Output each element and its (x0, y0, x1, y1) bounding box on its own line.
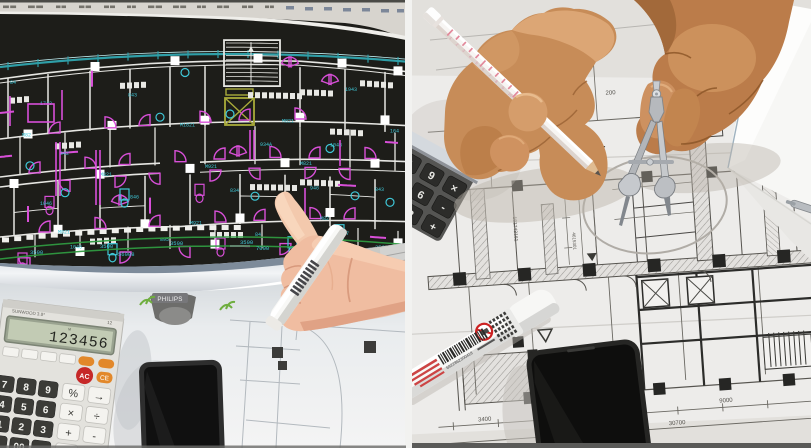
svg-text:M821: M821 (300, 161, 312, 167)
svg-text:M82: M82 (22, 133, 31, 139)
svg-text:3500: 3500 (100, 243, 113, 250)
svg-text:9000: 9000 (719, 398, 733, 405)
svg-text:M921: M921 (190, 220, 202, 226)
svg-text:1046: 1046 (40, 201, 52, 207)
svg-text:843: 843 (128, 93, 137, 99)
svg-text:M921: M921 (205, 164, 217, 170)
svg-text:M821: M821 (58, 229, 70, 235)
svg-text:3500: 3500 (170, 240, 183, 247)
svg-text:834: 834 (230, 188, 239, 194)
svg-text:AC: AC (79, 373, 90, 381)
svg-text:3500: 3500 (240, 239, 253, 246)
svg-text:3500: 3500 (30, 249, 43, 256)
svg-text:7000: 7000 (256, 245, 269, 252)
svg-text:1943: 1943 (345, 87, 357, 93)
svg-text:846: 846 (130, 195, 139, 201)
svg-text:946: 946 (310, 186, 319, 192)
svg-text:200: 200 (605, 90, 616, 97)
svg-text:→: → (93, 390, 105, 403)
svg-text:PHILIPS: PHILIPS (157, 296, 182, 303)
svg-text:942: 942 (60, 151, 69, 157)
svg-text:934A: 934A (260, 142, 272, 148)
svg-text:56008: 56008 (118, 251, 135, 258)
svg-text:30700: 30700 (669, 420, 687, 427)
svg-text:M821: M821 (100, 172, 112, 178)
svg-text:1046: 1046 (70, 244, 82, 250)
svg-text:M821: M821 (282, 119, 294, 125)
svg-text:%: % (68, 387, 79, 400)
svg-text:CE: CE (99, 374, 109, 382)
svg-text:84: 84 (10, 80, 16, 86)
svg-text:843: 843 (375, 187, 384, 193)
svg-text:M82: M82 (320, 216, 329, 222)
svg-text:164: 164 (390, 128, 399, 134)
svg-text:M1821: M1821 (180, 123, 195, 129)
svg-text:3400: 3400 (478, 417, 492, 424)
svg-text:M: M (68, 327, 71, 331)
